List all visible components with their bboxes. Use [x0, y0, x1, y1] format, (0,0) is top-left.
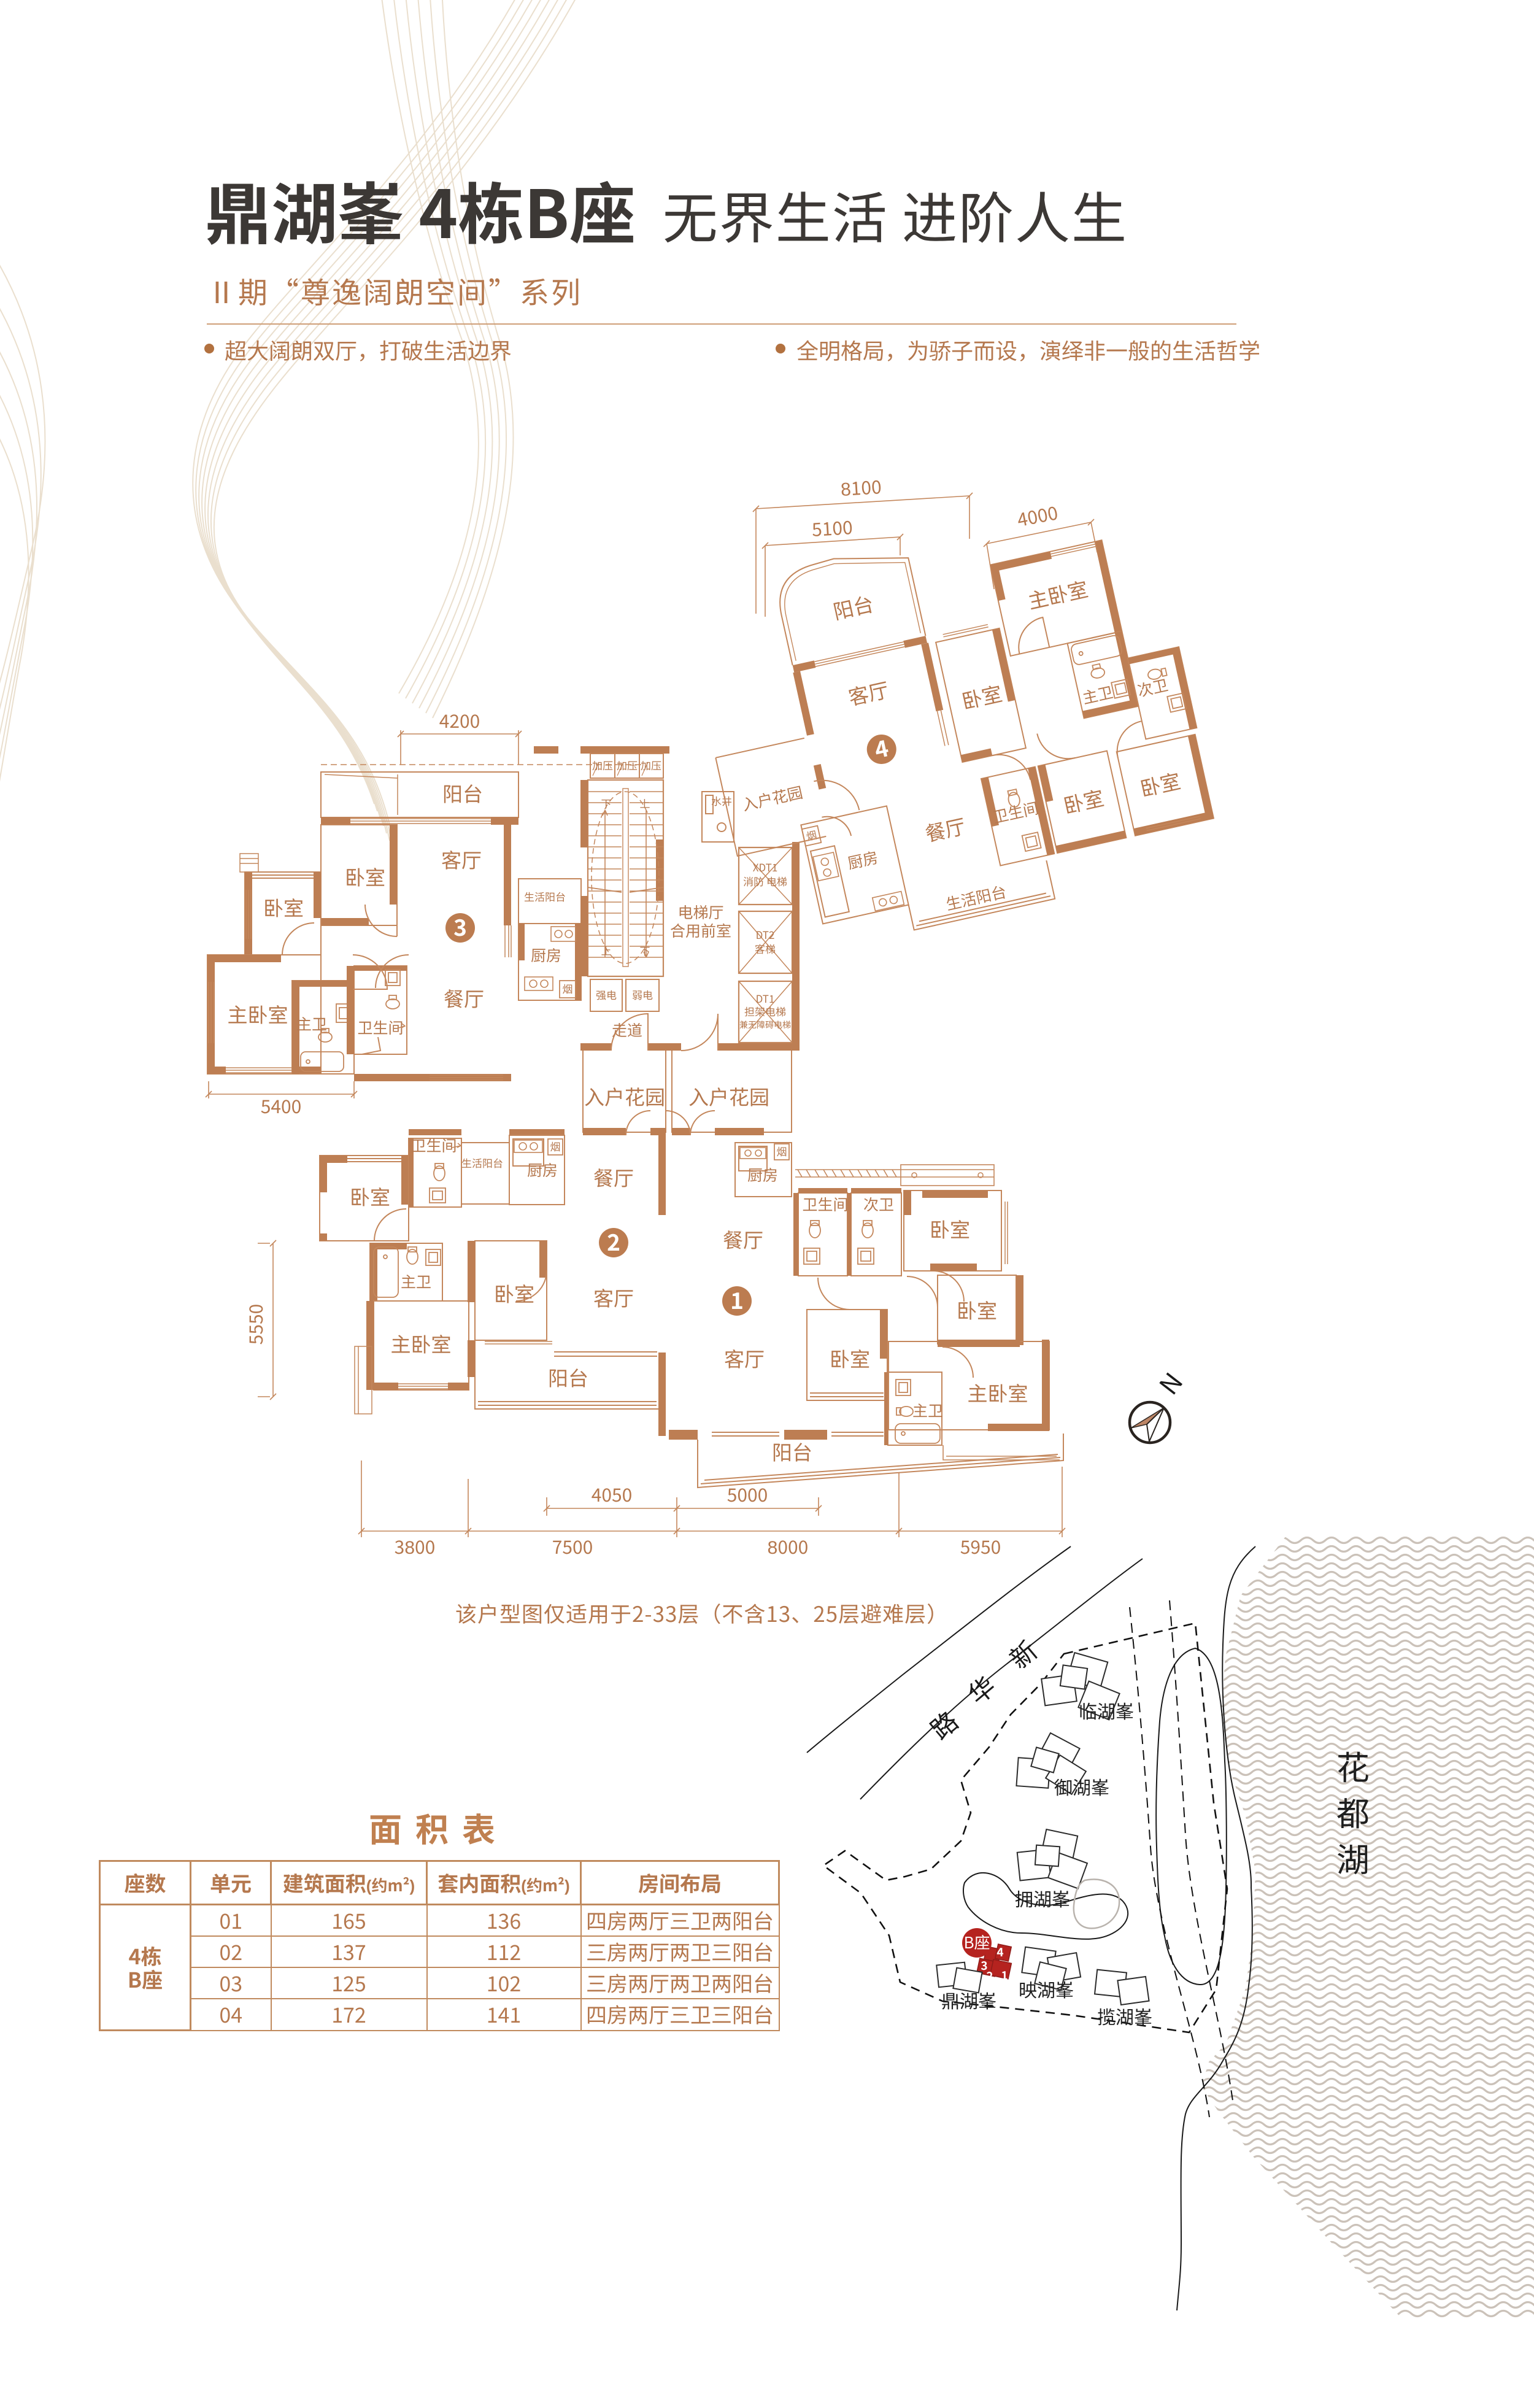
svg-text:B座: B座: [963, 1931, 990, 1953]
svg-text:1: 1: [1001, 1967, 1008, 1983]
svg-text:御湖峯: 御湖峯: [1054, 1773, 1109, 1800]
svg-text:路: 路: [922, 1702, 965, 1747]
svg-text:拥湖峯: 拥湖峯: [1015, 1885, 1070, 1912]
svg-text:4: 4: [996, 1943, 1003, 1960]
svg-text:映湖峯: 映湖峯: [1019, 1975, 1074, 2002]
svg-text:华: 华: [959, 1667, 1003, 1712]
svg-text:临湖峯: 临湖峯: [1079, 1697, 1134, 1724]
svg-text:鼎湖峯: 鼎湖峯: [941, 1986, 996, 2013]
svg-text:2: 2: [986, 1967, 993, 1984]
svg-text:都: 都: [1336, 1787, 1370, 1835]
svg-text:花: 花: [1336, 1741, 1370, 1789]
svg-text:湖: 湖: [1336, 1833, 1370, 1881]
svg-text:揽湖峯: 揽湖峯: [1097, 2002, 1152, 2029]
svg-text:新: 新: [1001, 1631, 1044, 1677]
